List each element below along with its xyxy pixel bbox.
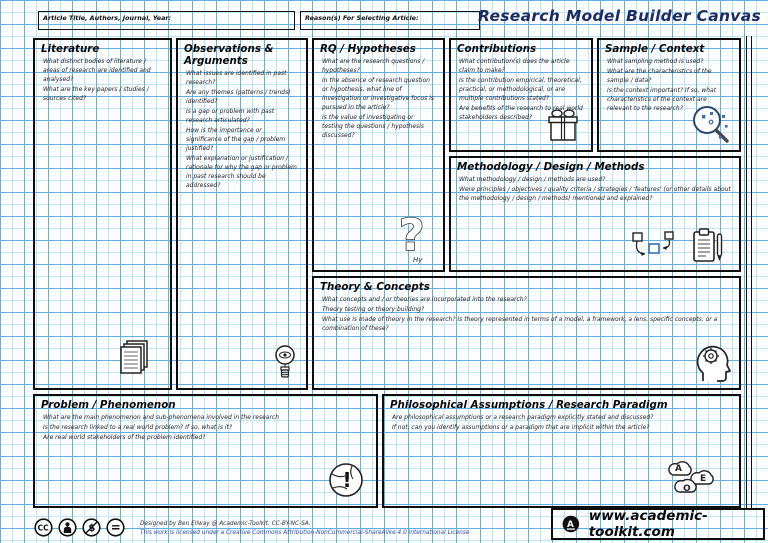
question-mark-icon: ? Hy (385, 210, 429, 266)
section-theory-title: Theory & Concepts (320, 281, 733, 293)
section-philosophical-assumptions: Philosophical Assumptions / Research Par… (382, 394, 741, 508)
question: Are philosophical assumptions or a resea… (392, 413, 731, 422)
question: What explanation or justification / rati… (186, 154, 298, 190)
svg-text:!: ! (343, 468, 352, 492)
question: Are any themes (patterns / trends) ident… (186, 88, 298, 106)
section-methodology-title: Methodology / Design / Methods (457, 161, 733, 173)
question: What concepts and / or theories are inco… (322, 295, 731, 304)
hy-caption: Hy (413, 256, 423, 264)
question: What are the research questions / hypoth… (322, 57, 435, 75)
question: What are the key papers / studies / sour… (43, 85, 162, 103)
credit-text: Designed by Ben Ellway @ Academic-Toolki… (140, 520, 469, 539)
cloud-letter-o: O (683, 484, 691, 494)
canvas-frame-right (746, 36, 752, 509)
cc-icon: CC (34, 518, 53, 537)
section-philosophy-title: Philosophical Assumptions / Research Par… (390, 399, 733, 411)
globe-alert-icon: ! (326, 460, 366, 500)
section-methodology: Methodology / Design / Methods What meth… (449, 156, 741, 272)
papers-stack-icon (116, 338, 152, 378)
question: Were principles / objectives / quality c… (459, 185, 731, 203)
lightbulb-eye-icon (272, 344, 298, 380)
research-model-builder-canvas: Article Title, Authors, Journal, Year: R… (0, 0, 768, 543)
section-problem-title: Problem / Phenomenon (41, 399, 370, 411)
question: What use is made of theory in the resear… (322, 315, 731, 333)
section-literature: Literature What distinct bodies of liter… (33, 38, 172, 390)
website-box: A www.academic-toolkit.com (551, 508, 765, 540)
svg-text:?: ? (399, 210, 425, 261)
thought-clouds-icon: A E O (661, 456, 717, 500)
section-observations: Observations & Arguments What issues are… (176, 38, 308, 390)
question: If not, can you identify assumptions or … (392, 423, 731, 432)
article-title-label: Article Title, Authors, Journal, Year: (43, 14, 171, 22)
credit-line-2: This work is licensed under a Creative C… (140, 529, 469, 538)
section-rq-title: RQ / Hypotheses (320, 43, 437, 55)
question: What distinct bodies of literature / are… (43, 57, 162, 84)
sa-glyph: = (111, 521, 121, 535)
cc-glyph: CC (38, 524, 50, 533)
reason-field: Reason(s) For Selecting Article: (300, 11, 480, 30)
head-gear-icon (693, 337, 731, 383)
clipboard-pen-icon (691, 227, 725, 265)
question: Theory testing or theory building? (322, 305, 731, 314)
question: What methodology / design / methods are … (459, 175, 731, 184)
cc-sa-icon: = (106, 518, 125, 537)
question: How is the importance or significance of… (186, 126, 298, 153)
question: What contribution(s) does the article cl… (459, 57, 583, 75)
question: What are the main phenomenon and sub-phe… (43, 413, 368, 422)
cloud-letter-a: A (675, 464, 682, 474)
section-literature-title: Literature (41, 43, 164, 55)
section-problem-phenomenon: Problem / Phenomenon What are the main p… (33, 394, 378, 508)
cc-by-icon (58, 518, 77, 537)
gift-icon (543, 107, 583, 145)
section-contributions: Contributions What contribution(s) does … (449, 38, 593, 152)
section-sample-title: Sample / Context (605, 43, 733, 55)
question: Is the contribution empirical, theoretic… (459, 76, 583, 103)
section-rq-hypotheses: RQ / Hypotheses What are the research qu… (312, 38, 445, 272)
question: What issues are identified in past resea… (186, 69, 298, 87)
question: What sampling method is used? (607, 57, 731, 66)
section-observations-title: Observations & Arguments (184, 43, 300, 67)
page-title: Research Model Builder Canvas (478, 7, 761, 25)
cloud-letter-e: E (700, 474, 706, 484)
credit-line-1: Designed by Ben Ellway @ Academic-Toolki… (140, 520, 469, 529)
reason-label: Reason(s) For Selecting Article: (305, 14, 419, 22)
section-theory-concepts: Theory & Concepts What concepts and / or… (312, 276, 741, 390)
flowchart-icon (629, 230, 677, 262)
question: Is the value of investigating or testing… (322, 113, 435, 140)
question: Is a gap or problem with past research a… (186, 107, 298, 125)
academic-toolkit-logo: A (562, 513, 580, 535)
question: Is the research linked to a real world p… (43, 423, 368, 432)
question: Are real world stakeholders of the probl… (43, 433, 368, 442)
website-url: www.academic-toolkit.com (589, 508, 754, 540)
question: In the absence of research question or h… (322, 76, 435, 112)
license-icons: CC $ = (34, 518, 125, 537)
magnifier-icon (689, 103, 733, 147)
article-title-field: Article Title, Authors, Journal, Year: (38, 11, 295, 30)
section-contributions-title: Contributions (457, 43, 585, 55)
section-sample-context: Sample / Context What sampling method is… (597, 38, 741, 152)
question: What are the characteristics of the samp… (607, 67, 731, 85)
cc-nc-icon: $ (82, 518, 101, 537)
